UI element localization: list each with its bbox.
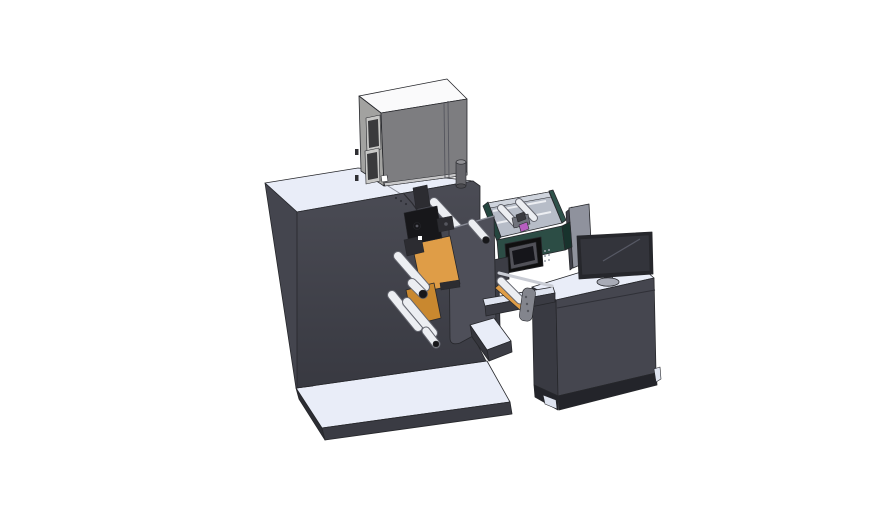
mechanism-hub-center <box>416 225 419 228</box>
box-window-glass <box>368 119 379 148</box>
panel-button <box>548 254 550 256</box>
clamp-bolt <box>444 222 448 226</box>
electrical-box-front-face <box>381 99 467 186</box>
feed-roller-cap <box>483 237 490 244</box>
handle-dot <box>525 296 527 298</box>
handle-dot <box>526 303 528 305</box>
cabinet-bolt <box>400 200 402 202</box>
panel-button <box>544 255 546 257</box>
filter-cylinder-cap <box>456 160 466 164</box>
roller-end-cap <box>433 341 439 347</box>
box-hinge-tab <box>355 175 359 181</box>
electrical-box <box>355 79 467 188</box>
filter-cylinder-body <box>456 162 466 186</box>
panel-button <box>544 260 546 262</box>
roller-end-cap <box>419 290 427 298</box>
monitor-screen <box>580 235 650 275</box>
panel-button <box>548 259 550 261</box>
handle-dot <box>527 310 529 312</box>
mechanism-glint <box>418 236 422 240</box>
box-window-glass <box>367 152 378 180</box>
monitor-base <box>597 278 619 286</box>
box-label <box>381 175 388 182</box>
panel-button <box>544 250 546 252</box>
cabinet-bolt <box>405 203 407 205</box>
machine-assembly-render <box>0 0 888 522</box>
filter-cylinder-bottom <box>456 184 466 188</box>
mechanism-bracket <box>413 185 430 209</box>
cad-render-canvas <box>0 0 888 522</box>
panel-button <box>548 249 550 251</box>
cabinet-bolt <box>395 197 397 199</box>
box-hinge-tab <box>355 149 359 155</box>
